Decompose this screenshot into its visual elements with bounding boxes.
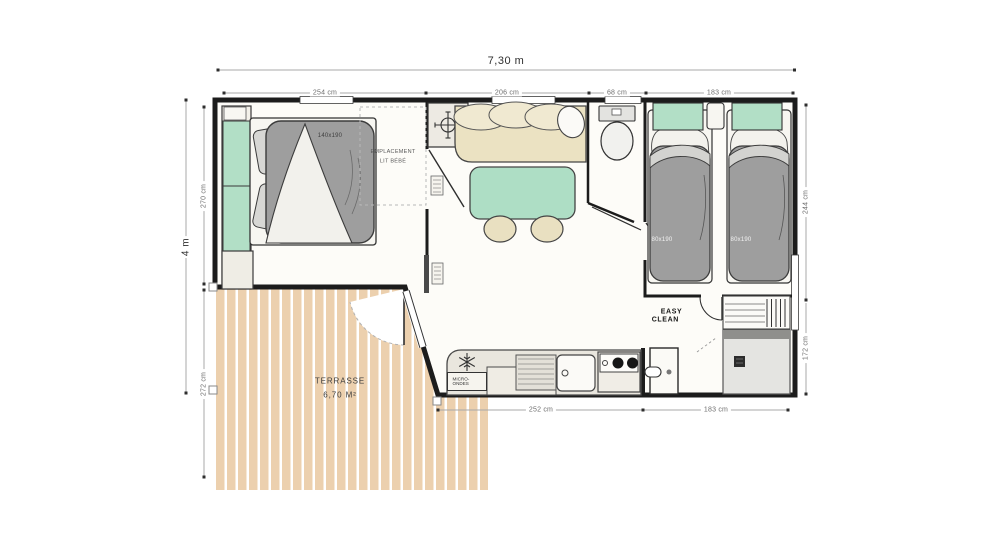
double-bed bbox=[250, 118, 376, 245]
dim-top-seg-3: 68 cm bbox=[604, 90, 630, 97]
dining-table bbox=[470, 167, 575, 219]
window-icon bbox=[792, 255, 799, 330]
dim-top-total: 7,30 m bbox=[483, 55, 530, 67]
microwave-label: MICRO-ONDES bbox=[453, 377, 482, 386]
dim-left-seg-2: 272 cm bbox=[201, 369, 208, 399]
single-bed bbox=[648, 103, 712, 283]
dim-top-seg-4: 183 cm bbox=[704, 90, 734, 97]
single-bed-size-label-2: 80x190 bbox=[731, 237, 752, 243]
shower-tray bbox=[723, 330, 790, 394]
floorplan-canvas: 7,30 m 254 cm 206 cm 68 cm 183 cm 4 m 27… bbox=[0, 0, 1000, 560]
dim-top-seg-2: 206 cm bbox=[492, 90, 522, 97]
dim-bottom-seg-1: 252 cm bbox=[526, 407, 556, 414]
nightstand bbox=[707, 103, 724, 129]
wc-room bbox=[599, 106, 635, 160]
terrace-label: TERRASSE 6,70 M² bbox=[315, 374, 365, 401]
burner bbox=[627, 358, 638, 369]
sink bbox=[557, 355, 595, 391]
window-icon bbox=[300, 97, 353, 104]
wardrobe-green-bottom bbox=[223, 186, 250, 251]
microwave-label-box: MICRO-ONDES bbox=[447, 372, 487, 391]
single-bed-size-label-1: 80x190 bbox=[652, 237, 673, 243]
dim-left-total: 4 m bbox=[180, 236, 193, 258]
entry-door-swing bbox=[350, 289, 404, 345]
shower-drain bbox=[734, 356, 745, 367]
burner bbox=[613, 358, 624, 369]
dim-right-seg-2: 172 cm bbox=[803, 333, 810, 363]
baby-bed-label: EMPLACEMENT LIT BÉBÉ bbox=[370, 148, 415, 167]
dim-right-seg-1: 244 cm bbox=[803, 187, 810, 217]
toilet-bowl bbox=[601, 122, 633, 160]
wardrobe-green-top bbox=[223, 121, 250, 186]
window-icon bbox=[605, 97, 641, 104]
shelf-unit bbox=[723, 296, 790, 329]
stool bbox=[531, 216, 563, 242]
dim-left-seg-1: 270 cm bbox=[201, 181, 208, 211]
dim-top-seg-1: 254 cm bbox=[310, 90, 340, 97]
dim-bottom-seg-2: 183 cm bbox=[701, 407, 731, 414]
drainboard bbox=[516, 355, 556, 390]
sofa bbox=[454, 102, 589, 162]
easy-clean-logo: EASY CLEAN bbox=[652, 308, 682, 323]
wardrobe-low-box bbox=[222, 251, 253, 289]
floorplan-drawing bbox=[0, 0, 1000, 560]
double-bed-size-label: 140x190 bbox=[318, 133, 342, 139]
stool bbox=[484, 216, 516, 242]
